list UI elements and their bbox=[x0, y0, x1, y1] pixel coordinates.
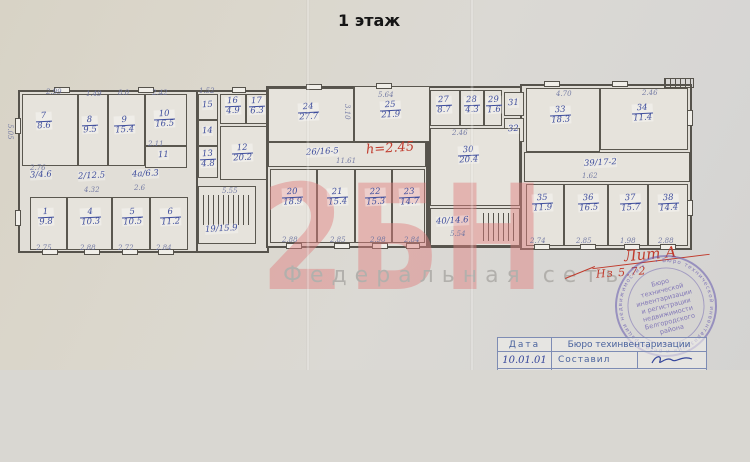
dimension-label: 8.0 bbox=[118, 89, 129, 97]
dimension-label: 1.52 bbox=[199, 87, 215, 95]
label-corridor-2: 2/12.5 bbox=[78, 170, 106, 181]
room-label-9: 915.4 bbox=[114, 115, 136, 134]
room-label-23: 2314.7 bbox=[399, 187, 421, 206]
dimension-label: 2.88 bbox=[80, 244, 96, 252]
dimension-label: 5.55 bbox=[222, 187, 238, 195]
room-area: 15.7 bbox=[620, 203, 641, 213]
room-30 bbox=[430, 128, 520, 206]
room-label-38: 3814.4 bbox=[658, 193, 680, 212]
room-label-5: 510.5 bbox=[122, 207, 144, 226]
room-area: 14.7 bbox=[399, 197, 420, 207]
room-area: 16.5 bbox=[578, 203, 599, 213]
watermark-subtitle: Федеральная сеть bbox=[283, 263, 626, 288]
dimension-label: 2.85 bbox=[330, 236, 346, 244]
room-label-35: 3511.9 bbox=[532, 193, 554, 212]
window-mark bbox=[15, 210, 21, 226]
room-area: 9.5 bbox=[82, 125, 98, 134]
room-label-27: 278.7 bbox=[436, 96, 452, 115]
room-area: 15.3 bbox=[365, 197, 386, 207]
bti-table: Дата Бюро техинвентаризации 10.01.01 Сос… bbox=[497, 337, 707, 372]
dimension-label: 2.88 bbox=[658, 237, 674, 245]
label-room-15: 15 bbox=[202, 100, 213, 111]
scanned-paper: 1 этаж bbox=[0, 0, 750, 370]
room-label-20: 2018.9 bbox=[282, 187, 304, 206]
table-header-bureau: Бюро техинвентаризации bbox=[552, 338, 706, 351]
room-label-4: 410.3 bbox=[80, 207, 102, 226]
dimension-label: 4.32 bbox=[84, 186, 100, 194]
label-stairs-40: 40/14.6 bbox=[436, 215, 469, 227]
window-mark bbox=[687, 110, 693, 126]
label-stairs-19: 19/15.9 bbox=[205, 223, 238, 235]
dimension-label: 2.84 bbox=[156, 244, 172, 252]
room-area: 16.5 bbox=[154, 119, 175, 129]
room-area: 14.4 bbox=[658, 203, 679, 213]
dimension-label: 5.64 bbox=[378, 91, 394, 99]
dimension-label: 2.88 bbox=[282, 236, 298, 244]
table-signature-cell bbox=[638, 352, 706, 368]
room-label-29: 291.6 bbox=[486, 96, 502, 115]
room-area: 6.3 bbox=[249, 106, 265, 115]
paper-fold bbox=[306, 0, 310, 370]
room-label-30: 3020.4 bbox=[458, 145, 480, 164]
room-label-10: 1016.5 bbox=[154, 109, 176, 128]
label-corridor-39: 39/17-2 bbox=[584, 157, 617, 169]
room-area: 15.4 bbox=[114, 125, 135, 135]
room-label-12: 1220.2 bbox=[232, 143, 254, 162]
dimension-label: 2.11 bbox=[148, 140, 164, 148]
room-label-37: 3715.7 bbox=[620, 193, 642, 212]
dimension-label: 3.10 bbox=[343, 104, 351, 120]
room-area: 10.3 bbox=[80, 217, 101, 227]
entry-steps bbox=[664, 78, 694, 88]
signature-scribble bbox=[650, 353, 694, 367]
room-label-21: 2115.4 bbox=[327, 187, 349, 206]
room-label-17: 176.3 bbox=[249, 97, 265, 116]
label-corridor-4a: 4а/6.3 bbox=[132, 168, 159, 179]
label-corridor-26: 26/16-5 bbox=[306, 146, 339, 158]
window-mark bbox=[15, 118, 21, 134]
room-label-33: 3318.3 bbox=[550, 105, 572, 124]
room-area: 11.9 bbox=[532, 203, 553, 213]
dimension-label: 5.05 bbox=[6, 124, 14, 140]
background-surface bbox=[0, 370, 750, 462]
dimension-label: 11.61 bbox=[336, 157, 356, 165]
room-label-13: 134.8 bbox=[200, 150, 216, 169]
room-area: 20.4 bbox=[458, 155, 479, 165]
stairwell-40 bbox=[430, 208, 520, 246]
dimension-label: 2.75 bbox=[36, 244, 52, 252]
room-label-8: 89.5 bbox=[82, 116, 98, 135]
dimension-label: 2.84 bbox=[404, 236, 420, 244]
label-room-14: 14 bbox=[202, 126, 213, 137]
dimension-label: 2.74 bbox=[530, 237, 546, 245]
room-area: 9.8 bbox=[38, 217, 54, 226]
room-area: 20.2 bbox=[232, 153, 253, 163]
dimension-label: 2.72 bbox=[118, 244, 134, 252]
label-room-31: 31 bbox=[508, 98, 519, 109]
dimension-label: 4.70 bbox=[556, 90, 572, 98]
dimension-label: 2.46 bbox=[452, 129, 468, 137]
room-label-34: 3411.4 bbox=[632, 103, 654, 122]
room-label-25: 2521.9 bbox=[380, 100, 402, 119]
paper-fold bbox=[470, 0, 474, 370]
table-header-date: Дата bbox=[498, 338, 552, 351]
window-mark bbox=[232, 87, 246, 93]
room-area: 1.6 bbox=[486, 105, 502, 114]
room-area: 8.6 bbox=[36, 121, 52, 130]
stair-hatch bbox=[203, 195, 251, 225]
room-area: 10.5 bbox=[122, 217, 143, 227]
room-area: 21.9 bbox=[380, 110, 401, 120]
room-area: 11.4 bbox=[632, 113, 653, 123]
room-label-7: 78.6 bbox=[36, 112, 52, 131]
dimension-label: 2.76 bbox=[30, 164, 46, 172]
room-area: 11.2 bbox=[160, 217, 181, 227]
dimension-label: 5.54 bbox=[450, 230, 466, 238]
room-label-6: 611.2 bbox=[160, 207, 182, 226]
room-label-22: 2215.3 bbox=[365, 187, 387, 206]
dimension-label: 1.98 bbox=[620, 237, 636, 245]
room-label-1: 19.8 bbox=[38, 208, 54, 227]
room-area: 4.9 bbox=[225, 106, 241, 115]
dimension-label: 2.99 bbox=[46, 88, 62, 96]
room-area: 4.8 bbox=[200, 159, 216, 168]
dimension-label: 2.46 bbox=[642, 89, 658, 97]
page-title: 1 этаж bbox=[338, 11, 400, 30]
dimension-label: 2.6 bbox=[134, 184, 145, 192]
table-date-value: 10.01.01 bbox=[498, 352, 552, 368]
window-mark bbox=[376, 83, 392, 89]
room-area: 8.7 bbox=[436, 105, 452, 114]
window-mark bbox=[544, 81, 560, 87]
dimension-label: 1.62 bbox=[582, 172, 598, 180]
dimension-label: 2.85 bbox=[576, 237, 592, 245]
room-area: 18.9 bbox=[282, 197, 303, 207]
room-area: 15.4 bbox=[327, 197, 348, 207]
label-room-32: 32 bbox=[508, 124, 519, 135]
room-label-36: 3616.5 bbox=[578, 193, 600, 212]
dimension-label: 2.42 bbox=[152, 89, 168, 97]
window-mark bbox=[612, 81, 628, 87]
label-room-11: 11 bbox=[158, 150, 169, 161]
table-compiler-label: Составил bbox=[552, 352, 638, 368]
window-mark bbox=[687, 200, 693, 216]
room-area: 18.3 bbox=[550, 115, 571, 125]
room-label-16: 164.9 bbox=[225, 97, 241, 116]
dimension-label: 2.98 bbox=[370, 236, 386, 244]
dimension-label: 1.49 bbox=[86, 90, 102, 98]
stair-hatch bbox=[483, 213, 515, 241]
